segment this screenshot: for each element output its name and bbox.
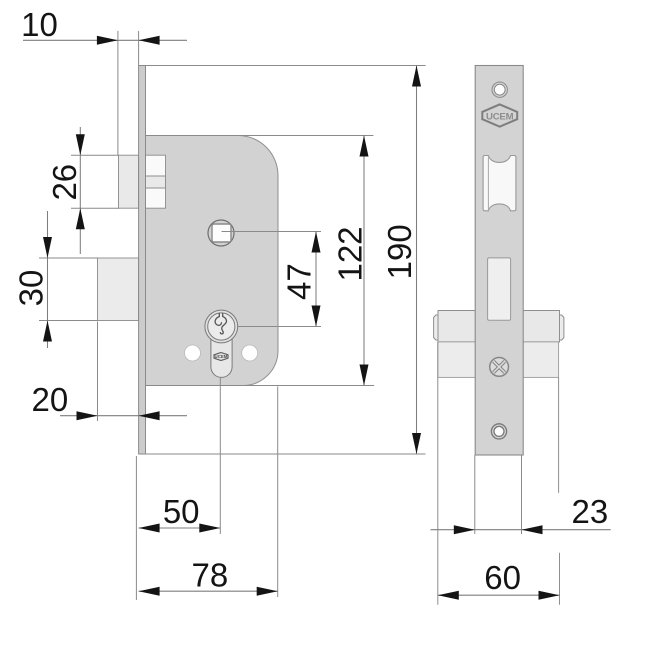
svg-text:10: 10 bbox=[21, 6, 58, 43]
svg-text:UCEM: UCEM bbox=[215, 354, 228, 359]
svg-text:60: 60 bbox=[484, 559, 521, 596]
svg-text:UCEM: UCEM bbox=[486, 111, 514, 122]
svg-text:50: 50 bbox=[163, 493, 200, 530]
svg-text:47: 47 bbox=[280, 263, 317, 300]
svg-text:20: 20 bbox=[32, 381, 69, 418]
svg-text:26: 26 bbox=[46, 164, 83, 201]
svg-text:78: 78 bbox=[192, 557, 229, 594]
svg-text:30: 30 bbox=[13, 270, 50, 307]
svg-text:190: 190 bbox=[381, 224, 418, 279]
svg-text:23: 23 bbox=[572, 493, 609, 530]
svg-text:122: 122 bbox=[332, 226, 369, 281]
